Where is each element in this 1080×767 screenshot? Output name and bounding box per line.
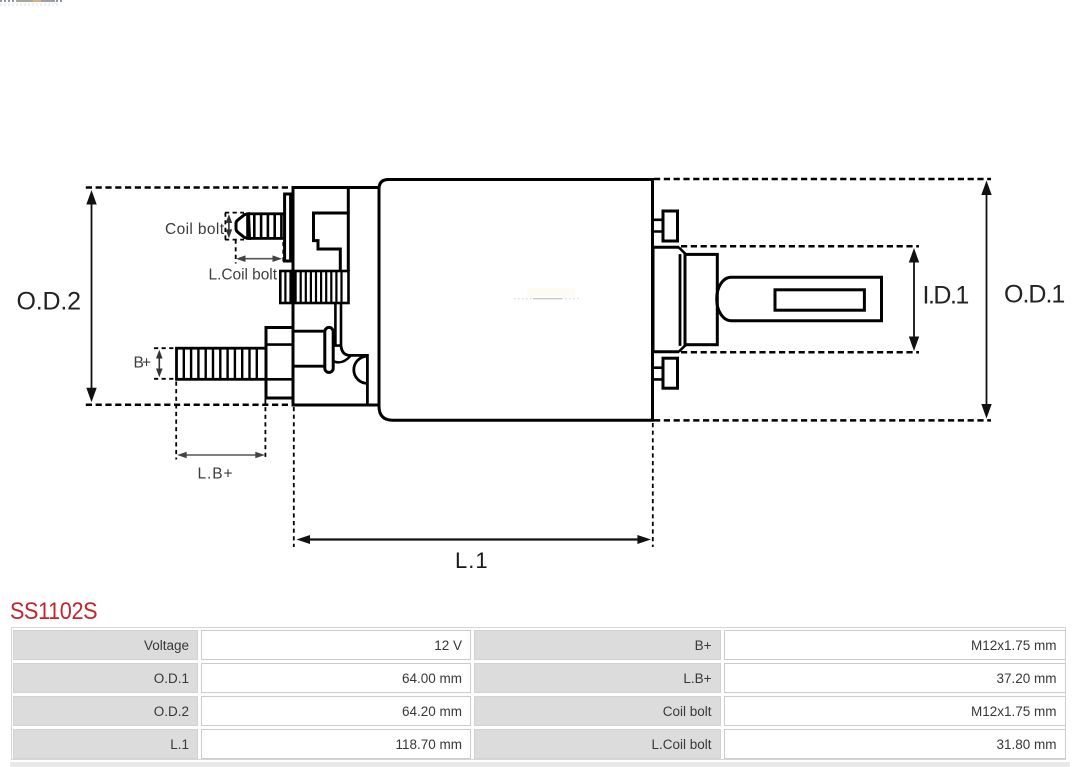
svg-text:O.D.2: O.D.2 (17, 288, 81, 316)
svg-text:I.D.1: I.D.1 (923, 282, 969, 310)
svg-text:L.B+: L.B+ (198, 466, 233, 483)
svg-text:L.Coil bolt: L.Coil bolt (209, 267, 278, 284)
svg-text:L.1: L.1 (455, 548, 489, 573)
svg-text:O.D.1: O.D.1 (1004, 281, 1064, 309)
svg-text:Coil bolt: Coil bolt (165, 221, 225, 238)
svg-text:B+: B+ (134, 355, 152, 372)
